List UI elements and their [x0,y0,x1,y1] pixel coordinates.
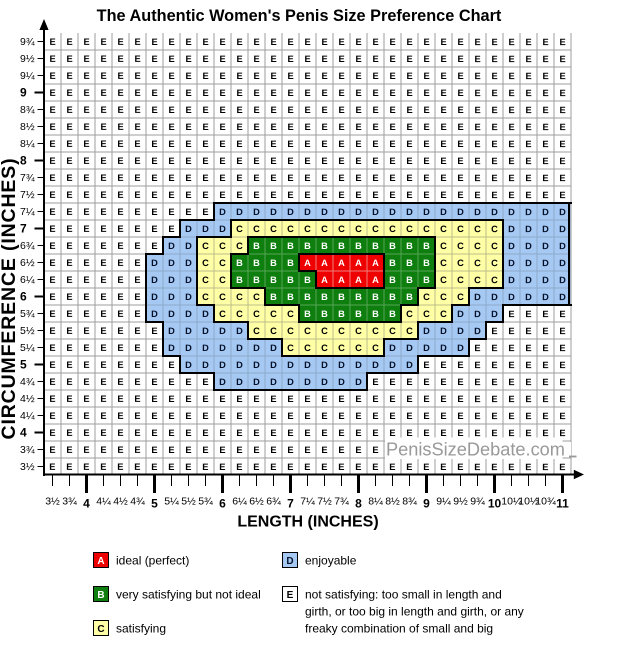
svg-text:8¼: 8¼ [20,138,35,150]
svg-text:10: 10 [488,497,502,511]
svg-text:BBBBBBBBB: BBBBBBBBB [270,292,413,302]
svg-text:5¼: 5¼ [164,496,179,508]
svg-text:4¾: 4¾ [130,496,145,508]
svg-text:C: C [97,624,104,635]
svg-text:4¼: 4¼ [96,496,111,508]
svg-text:9¾: 9¾ [470,496,485,508]
svg-text:freaky combination of small an: freaky combination of small and big [305,622,493,636]
svg-text:E: E [287,590,294,601]
svg-text:7¾: 7¾ [20,172,35,184]
svg-text:9¼: 9¼ [436,496,451,508]
svg-text:PenisSizeDebate.com: PenisSizeDebate.com [386,440,565,460]
svg-text:The Authentic Women's Penis Si: The Authentic Women's Penis Size Prefere… [97,7,502,25]
svg-text:4: 4 [83,497,90,511]
svg-text:B: B [97,590,104,601]
svg-text:5: 5 [151,497,158,511]
svg-text:11: 11 [556,497,569,511]
svg-text:7: 7 [287,497,294,511]
svg-text:8¾: 8¾ [20,104,35,116]
svg-text:7¾: 7¾ [334,496,349,508]
svg-text:8: 8 [355,497,362,511]
svg-text:3¾: 3¾ [62,496,77,508]
svg-text:DDDDDDDDDDDDDDDDDDDDD: DDDDDDDDDDDDDDDDDDDDD [219,207,566,217]
svg-text:6: 6 [20,290,27,304]
svg-text:CIRCUMFERENCE (INCHES): CIRCUMFERENCE (INCHES) [0,158,20,440]
svg-text:5½: 5½ [20,325,35,337]
svg-text:D: D [286,556,293,567]
svg-text:very satisfying but not ideal: very satisfying but not ideal [116,588,261,602]
svg-text:3¾: 3¾ [20,444,35,456]
svg-text:8¼: 8¼ [368,496,383,508]
svg-text:5¾: 5¾ [198,496,213,508]
svg-text:8½: 8½ [385,496,400,508]
svg-text:4¼: 4¼ [20,410,35,422]
svg-text:girth, or too big in length an: girth, or too big in length and girth, o… [305,605,524,619]
svg-text:7¼: 7¼ [20,206,35,218]
svg-text:6¼: 6¼ [232,496,247,508]
svg-text:10¾: 10¾ [535,496,556,508]
svg-text:4¾: 4¾ [20,376,35,388]
svg-text:9: 9 [20,86,27,100]
svg-text:3½: 3½ [45,496,60,508]
svg-text:6: 6 [219,497,226,511]
svg-text:6½: 6½ [249,496,264,508]
svg-text:A: A [97,556,104,567]
svg-text:9½: 9½ [453,496,468,508]
svg-text:7½: 7½ [317,496,332,508]
svg-text:5½: 5½ [181,496,196,508]
svg-text:DDDDDDDDD: DDDDDDDDD [219,377,362,387]
svg-text:3½: 3½ [20,461,35,473]
svg-text:7: 7 [20,222,27,236]
svg-text:6¾: 6¾ [20,240,35,252]
svg-text:ideal (perfect): ideal (perfect) [116,554,189,568]
svg-text:9¾: 9¾ [20,36,35,48]
svg-text:5: 5 [20,358,27,372]
svg-text:8: 8 [20,154,27,168]
svg-text:enjoyable: enjoyable [305,554,357,568]
svg-text:4: 4 [20,426,27,440]
svg-text:9: 9 [423,497,430,511]
svg-text:not satisfying: too small in l: not satisfying: too small in length and [305,588,502,602]
svg-text:7½: 7½ [20,189,35,201]
svg-text:6¼: 6¼ [20,274,35,286]
svg-text:4½: 4½ [113,496,128,508]
svg-text:9¼: 9¼ [20,70,35,82]
svg-text:7¼: 7¼ [300,496,315,508]
svg-text:LENGTH (INCHES): LENGTH (INCHES) [237,514,378,531]
svg-text:8½: 8½ [20,121,35,133]
svg-text:6¾: 6¾ [266,496,281,508]
svg-text:6½: 6½ [20,257,35,269]
svg-text:satisfying: satisfying [116,622,166,636]
svg-text:4½: 4½ [20,393,35,405]
svg-text:5¼: 5¼ [20,342,35,354]
svg-text:9½: 9½ [20,53,35,65]
svg-text:8¾: 8¾ [402,496,417,508]
svg-text:5¾: 5¾ [20,308,35,320]
